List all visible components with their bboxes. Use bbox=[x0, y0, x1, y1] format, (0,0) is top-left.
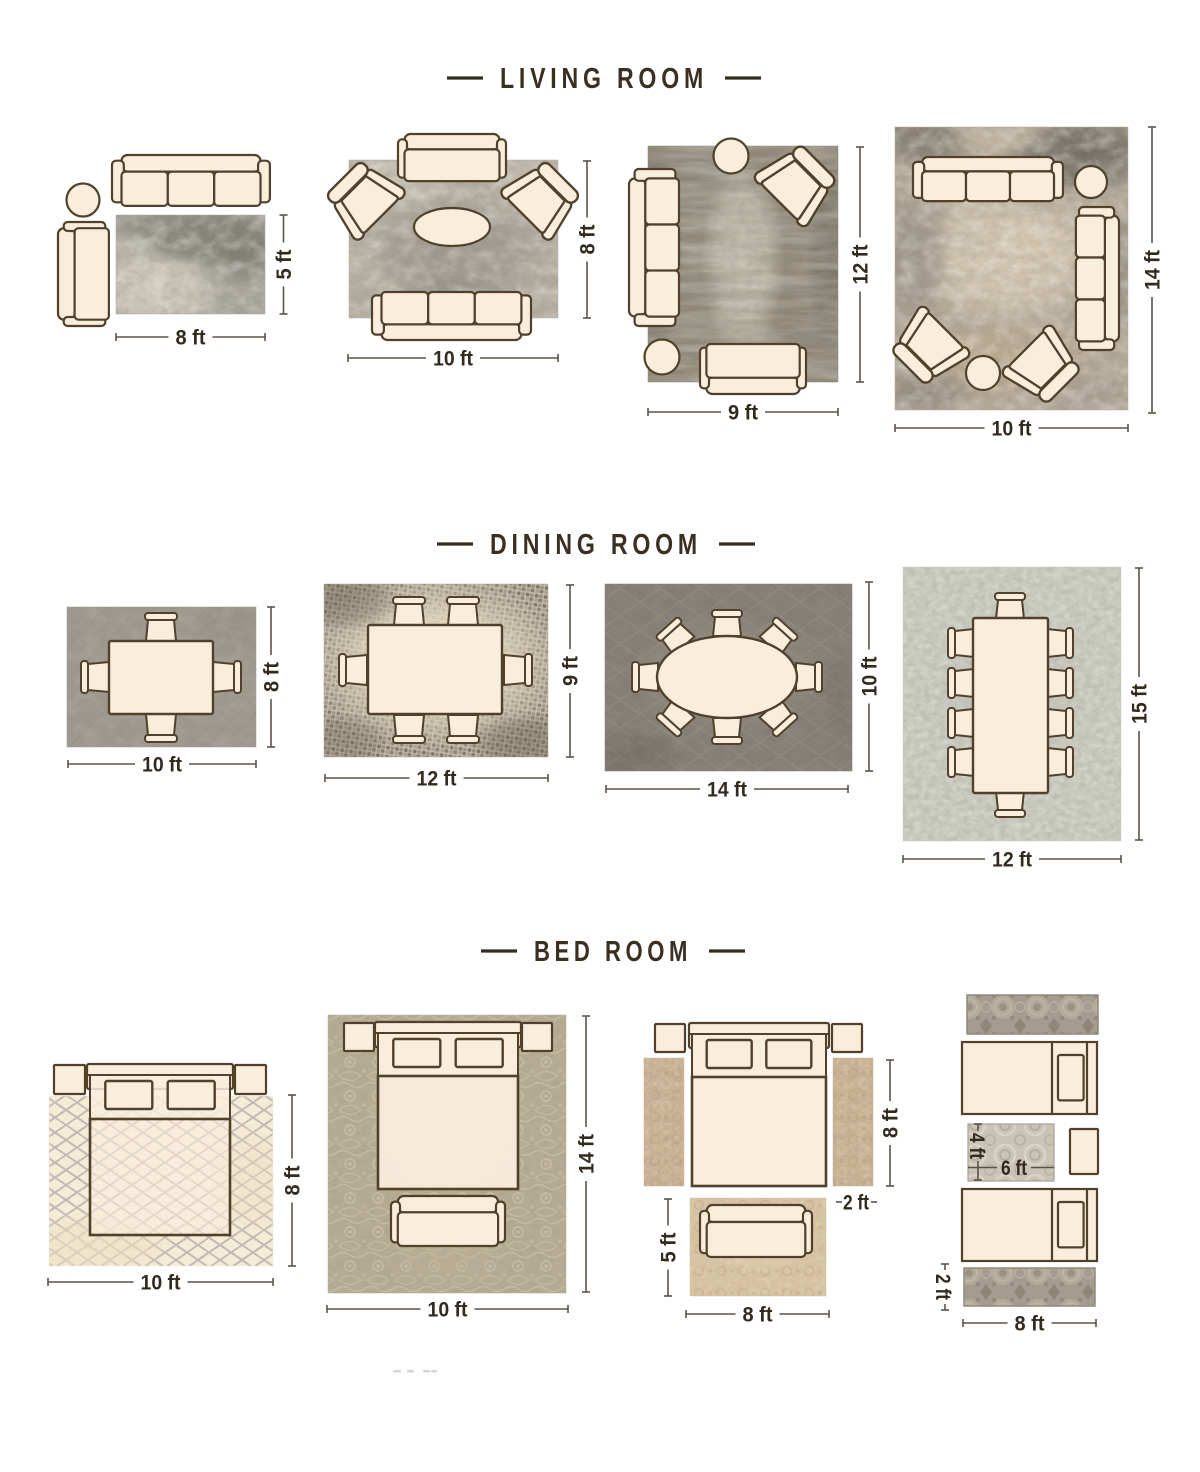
svg-text:10 ft: 10 ft bbox=[992, 418, 1032, 441]
svg-text:12 ft: 12 ft bbox=[850, 245, 873, 285]
svg-text:LIVING ROOM: LIVING ROOM bbox=[500, 63, 708, 95]
svg-text:10 ft: 10 ft bbox=[428, 1299, 468, 1322]
svg-text:9 ft: 9 ft bbox=[728, 402, 758, 425]
svg-text:10 ft: 10 ft bbox=[141, 1272, 181, 1295]
svg-text:5 ft: 5 ft bbox=[273, 249, 296, 279]
svg-text:8 ft: 8 ft bbox=[743, 1304, 773, 1327]
svg-text:14 ft: 14 ft bbox=[707, 779, 747, 802]
svg-text:10 ft: 10 ft bbox=[859, 657, 882, 697]
svg-text:14 ft: 14 ft bbox=[576, 1134, 599, 1174]
svg-text:15 ft: 15 ft bbox=[1129, 684, 1152, 724]
svg-text:DINING ROOM: DINING ROOM bbox=[490, 529, 702, 561]
svg-text:9 ft: 9 ft bbox=[560, 656, 583, 686]
svg-text:12 ft: 12 ft bbox=[417, 768, 457, 791]
svg-text:12 ft: 12 ft bbox=[992, 849, 1032, 872]
svg-text:8 ft: 8 ft bbox=[1015, 1313, 1045, 1336]
svg-text:5 ft: 5 ft bbox=[658, 1232, 681, 1262]
svg-text:4 ft: 4 ft bbox=[965, 1133, 988, 1159]
svg-text:BED ROOM: BED ROOM bbox=[534, 936, 692, 968]
svg-text:8 ft: 8 ft bbox=[261, 662, 284, 692]
svg-text:8 ft: 8 ft bbox=[880, 1108, 903, 1138]
svg-text:6 ft: 6 ft bbox=[1001, 1157, 1027, 1180]
svg-text:2 ft: 2 ft bbox=[843, 1192, 869, 1215]
svg-text:2 ft: 2 ft bbox=[931, 1274, 954, 1300]
svg-text:14 ft: 14 ft bbox=[1142, 250, 1165, 290]
svg-text:8 ft: 8 ft bbox=[282, 1165, 305, 1195]
svg-text:10 ft: 10 ft bbox=[433, 348, 473, 371]
svg-text:8 ft: 8 ft bbox=[577, 224, 600, 254]
svg-text:10 ft: 10 ft bbox=[142, 754, 182, 777]
svg-text:8 ft: 8 ft bbox=[176, 327, 206, 350]
